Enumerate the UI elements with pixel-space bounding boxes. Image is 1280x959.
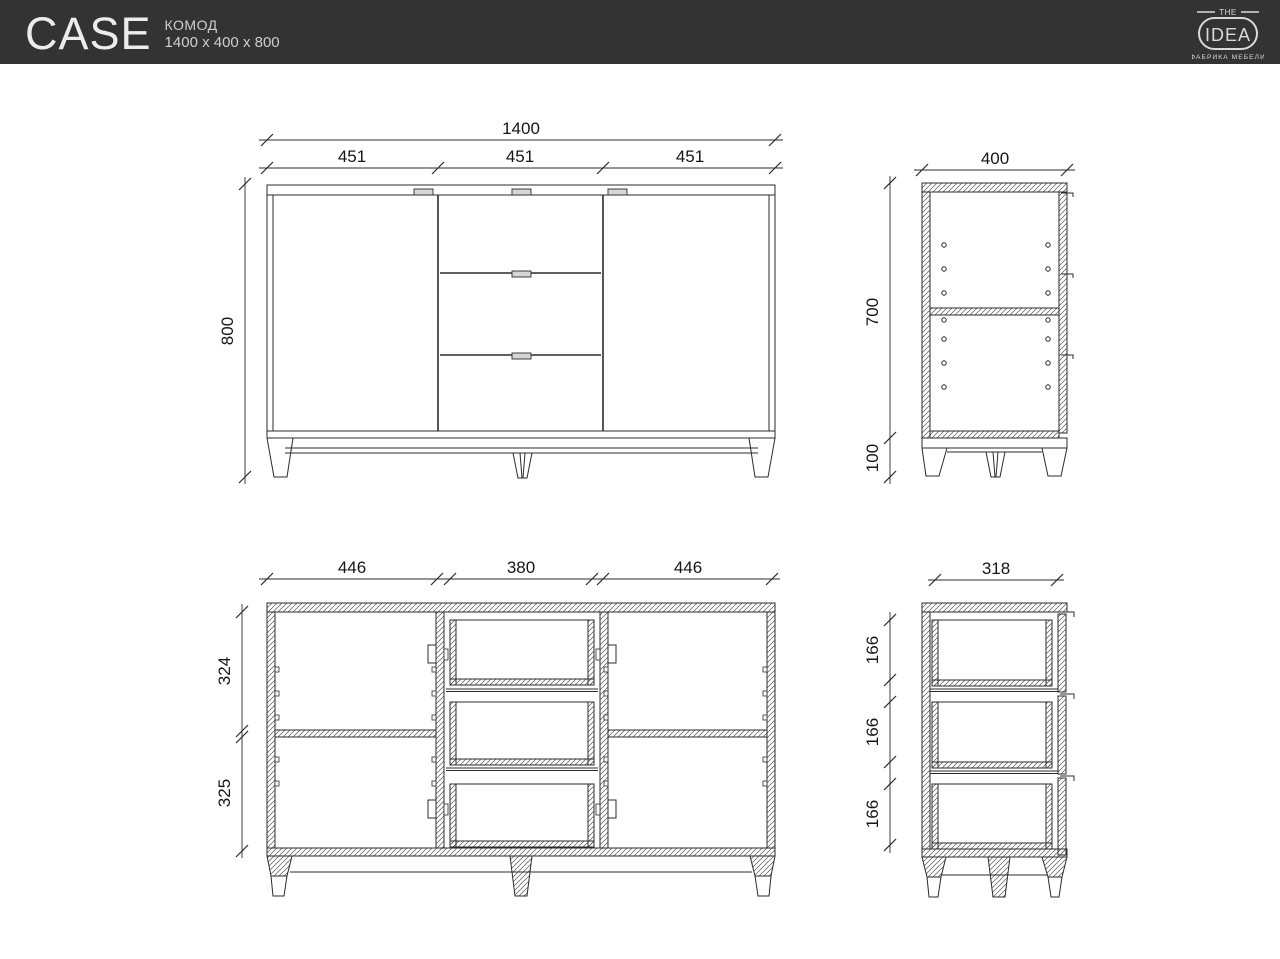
dim-fs-left-width: 446 <box>338 558 366 577</box>
dim-fs-upper-height: 324 <box>215 657 234 685</box>
ss-base-legs <box>922 857 1067 897</box>
dim-front-height: 800 <box>218 317 237 345</box>
dim-ss-drawer-2: 166 <box>863 718 882 746</box>
product-name: CASE <box>25 15 152 53</box>
right-shelf <box>608 730 767 737</box>
dim-fs-lower-height: 325 <box>215 779 234 807</box>
drawer-handle-2 <box>512 271 531 277</box>
side-base-legs <box>922 438 1067 477</box>
dim-front-section-1: 451 <box>338 147 366 166</box>
product-size: 1400 x 400 x 800 <box>165 34 280 52</box>
dim-front-total-width: 1400 <box>502 119 540 138</box>
left-door-handle <box>414 189 433 195</box>
right-door-handle <box>608 189 627 195</box>
side-shelf-pin-holes <box>942 243 1050 389</box>
dim-ss-drawer-3: 166 <box>863 800 882 828</box>
dim-side-leg-height: 100 <box>863 444 882 472</box>
fs-base-legs <box>267 856 775 896</box>
dim-fs-right-width: 446 <box>674 558 702 577</box>
dim-front-section-2: 451 <box>506 147 534 166</box>
product-type: КОМОД <box>165 17 280 34</box>
drawer-handle-1 <box>512 189 531 195</box>
front-view: 1400 451 451 451 800 <box>218 119 783 484</box>
logo-top-text: THE <box>1219 8 1237 17</box>
side-section-view: 318 166 166 166 <box>863 559 1074 897</box>
front-dimensions: 1400 451 451 451 800 <box>218 119 783 484</box>
brand-logo: THE IDEA ФАБРИКА МЕБЕЛИ <box>1192 4 1264 67</box>
dim-side-body-height: 700 <box>863 298 882 326</box>
ss-drawer-boxes <box>930 620 1058 849</box>
drawer-handle-3 <box>512 353 531 359</box>
drawer-front-1 <box>1058 614 1066 692</box>
fs-carcass <box>267 603 775 856</box>
logo-main-text: IDEA <box>1205 25 1251 45</box>
side-carcass <box>922 183 1073 438</box>
dim-ss-drawer-1: 166 <box>863 636 882 664</box>
product-subtitle: КОМОД 1400 x 400 x 800 <box>165 17 280 53</box>
title-block: CASE КОМОД 1400 x 400 x 800 <box>0 15 280 64</box>
header-bar: CASE КОМОД 1400 x 400 x 800 THE IDEA ФАБ… <box>0 0 1280 64</box>
left-shelf <box>275 730 436 737</box>
front-section-view: 446 380 446 324 325 <box>215 558 780 896</box>
drawer-front-3 <box>1058 778 1066 855</box>
front-carcass <box>267 185 775 438</box>
dim-fs-center-width: 380 <box>507 558 535 577</box>
technical-drawing: 1400 451 451 451 800 <box>0 0 1280 959</box>
dim-front-section-3: 451 <box>676 147 704 166</box>
dim-ss-depth: 318 <box>982 559 1010 578</box>
fs-drawer-boxes <box>446 620 598 847</box>
side-view: 400 700 100 <box>863 149 1075 484</box>
logo-bottom-text: ФАБРИКА МЕБЕЛИ <box>1192 54 1264 61</box>
front-base-legs <box>267 438 775 478</box>
drawer-front-2 <box>1058 696 1066 774</box>
dim-side-depth: 400 <box>981 149 1009 168</box>
